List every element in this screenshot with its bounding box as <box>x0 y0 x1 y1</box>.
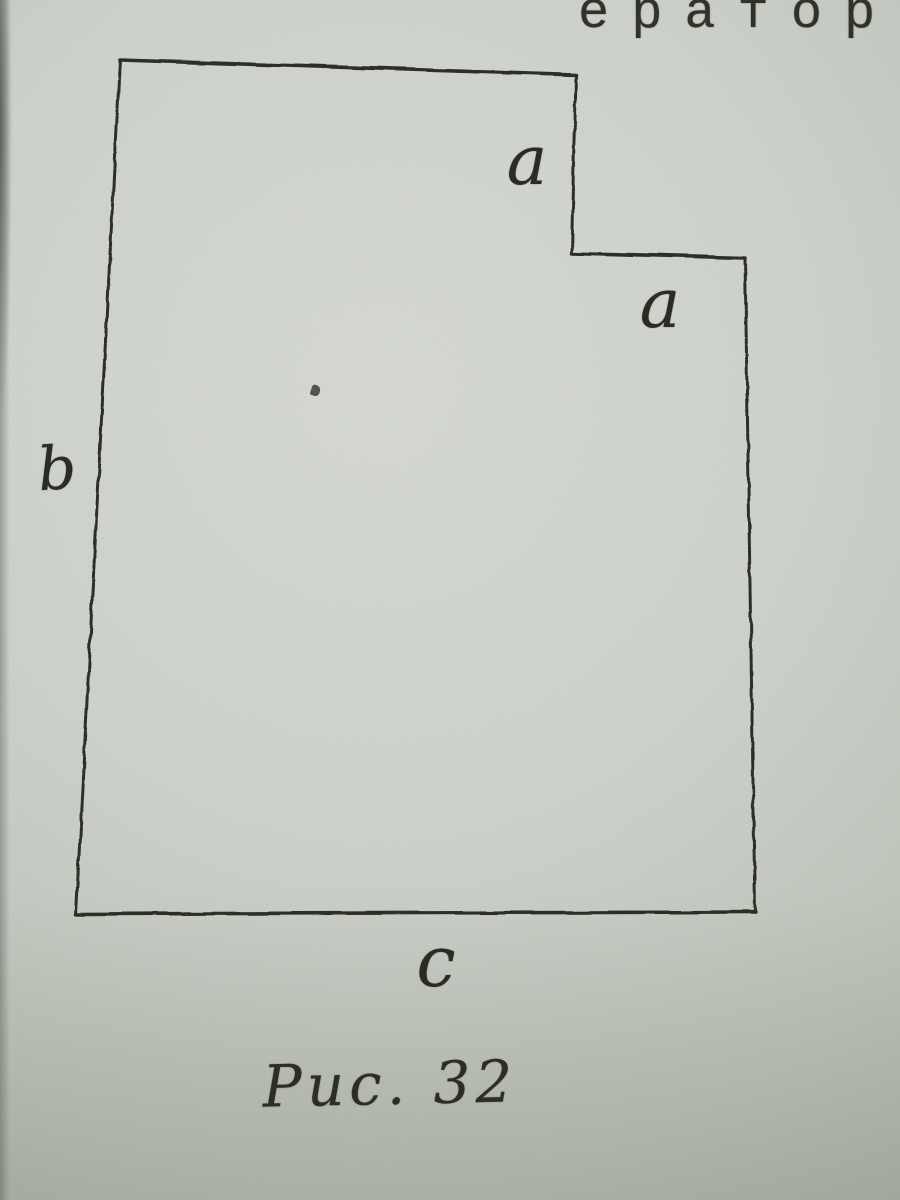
shape-edge-bottom <box>76 912 755 914</box>
shape-edge-top <box>120 60 576 75</box>
figure-caption: Рис. 32 <box>262 1047 518 1120</box>
shape-edge-right <box>745 258 755 912</box>
shape-edge-notch-right <box>572 75 576 253</box>
label-a-notch-vertical-side: a <box>507 128 548 196</box>
label-b-left-side: b <box>36 438 79 501</box>
figure-32: a a b c Рис. 32 ератор <box>0 0 900 1200</box>
label-c-bottom-side: c <box>416 927 455 997</box>
cropped-typewriter-text: ератор <box>578 0 897 40</box>
notched-rectangle-shape <box>0 0 900 1200</box>
shape-edge-notch-bottom <box>572 253 745 258</box>
shape-edge-left <box>76 60 120 914</box>
shape-outline <box>76 60 755 914</box>
label-a-notch-horizontal-side: a <box>640 271 681 339</box>
